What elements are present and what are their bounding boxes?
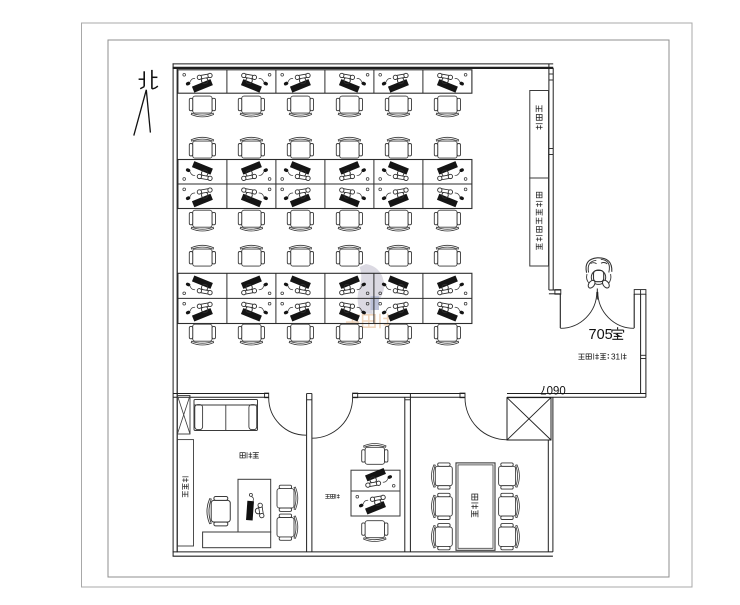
svg-text:0607: 0607 bbox=[540, 383, 566, 395]
svg-text:705: 705 bbox=[589, 327, 613, 343]
svg-text:31: 31 bbox=[611, 352, 621, 361]
